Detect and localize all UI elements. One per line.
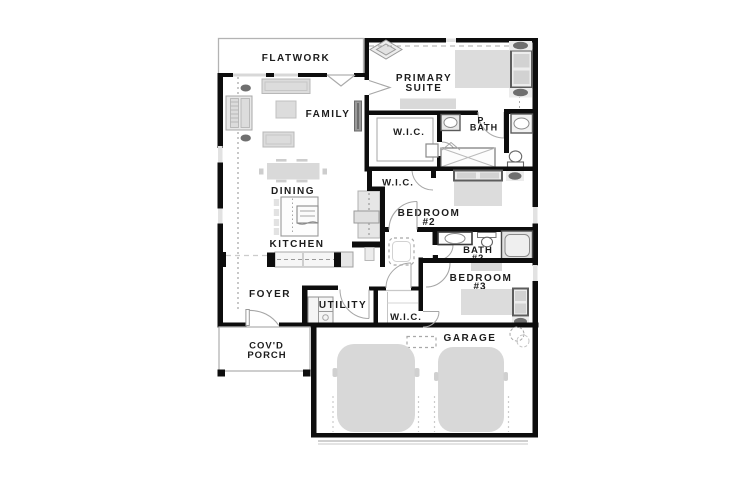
svg-text:W.I.C.: W.I.C. (382, 178, 414, 189)
svg-text:#2: #2 (422, 217, 435, 228)
svg-text:UTILITY: UTILITY (319, 300, 367, 311)
svg-text:FLATWORK: FLATWORK (262, 53, 330, 64)
svg-text:FAMILY: FAMILY (306, 109, 351, 120)
svg-text:W.I.C.: W.I.C. (393, 127, 425, 138)
svg-text:FOYER: FOYER (249, 289, 291, 300)
svg-text:PORCH: PORCH (247, 350, 286, 361)
svg-text:W.I.C.: W.I.C. (390, 312, 422, 323)
svg-text:KITCHEN: KITCHEN (270, 239, 325, 250)
svg-text:DINING: DINING (271, 186, 315, 197)
svg-text:SUITE: SUITE (406, 83, 443, 94)
svg-text:GARAGE: GARAGE (444, 333, 497, 344)
svg-text:BATH: BATH (470, 123, 498, 133)
